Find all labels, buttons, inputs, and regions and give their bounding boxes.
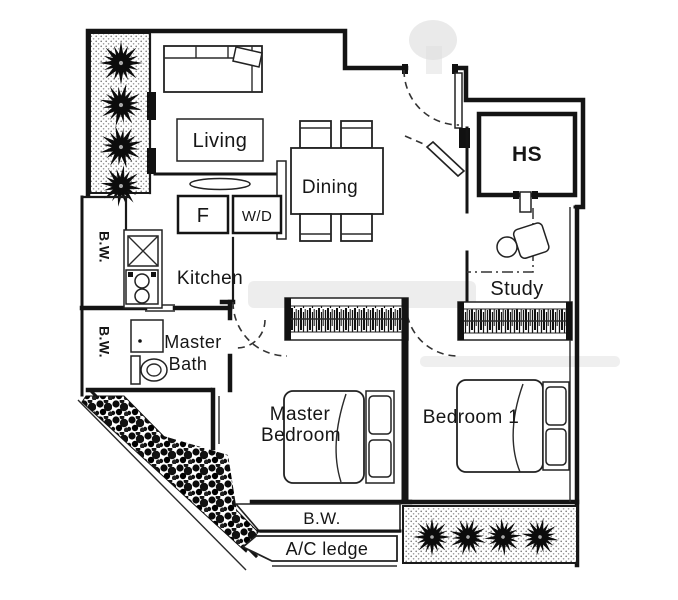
entry-door-swing-dash bbox=[405, 136, 426, 145]
dining-chair-icon bbox=[341, 121, 372, 148]
sink-drain bbox=[138, 339, 142, 343]
planter-top-left bbox=[88, 33, 156, 212]
wall-post bbox=[147, 92, 156, 120]
dining-area: Dining bbox=[277, 121, 383, 241]
wardrobe-cap bbox=[285, 298, 291, 340]
bath-sink-icon bbox=[131, 320, 163, 352]
label-bay-window-lower: B.W. bbox=[96, 326, 112, 358]
door-jamb bbox=[402, 64, 408, 74]
label-ac-ledge: A/C ledge bbox=[286, 539, 369, 559]
bottom-bands: B.W. A/C ledge bbox=[236, 504, 400, 566]
pillow-icon bbox=[546, 387, 566, 425]
watermark-band-bedroom bbox=[420, 356, 620, 367]
toilet-icon bbox=[141, 359, 167, 381]
entry-door-leaf-open bbox=[427, 142, 464, 176]
burner-icon bbox=[135, 289, 149, 303]
stove-knob bbox=[128, 272, 133, 277]
bedroom1-door-arc bbox=[406, 304, 458, 356]
label-living: Living bbox=[193, 130, 248, 152]
bath-door-swing-arc bbox=[237, 320, 265, 348]
wardrobe-cap bbox=[458, 302, 464, 340]
wardrobe-cap bbox=[566, 302, 572, 340]
toilet-tank bbox=[131, 356, 140, 384]
entry-door bbox=[404, 70, 470, 176]
label-master-bath-1: Master bbox=[164, 332, 221, 352]
master-bedroom: Master Bedroom bbox=[213, 390, 410, 502]
door-jamb bbox=[532, 191, 538, 199]
dining-chair-icon bbox=[300, 121, 331, 148]
door-jamb bbox=[513, 191, 519, 199]
dining-chair-icon bbox=[341, 214, 372, 241]
pillow-icon bbox=[369, 396, 391, 434]
household-shelter: HS bbox=[479, 114, 583, 212]
pillow-icon bbox=[369, 440, 391, 477]
study-desk-icon bbox=[512, 222, 550, 260]
pillow-icon bbox=[546, 429, 566, 465]
label-shelter: HS bbox=[512, 143, 542, 166]
label-dining: Dining bbox=[302, 177, 358, 198]
burner-icon bbox=[135, 274, 149, 288]
study-chair-icon bbox=[497, 237, 517, 257]
floor-plan-drawing: Living Dining F W/D Kitchen B.W. bbox=[0, 0, 678, 600]
shelter-door-leaf bbox=[520, 192, 531, 212]
label-bay-window-bottom: B.W. bbox=[303, 509, 341, 528]
foliage-band bbox=[82, 396, 258, 552]
label-kitchen: Kitchen bbox=[177, 268, 243, 289]
watermark-stem bbox=[426, 46, 442, 74]
master-bath: Master Bath B.W. bbox=[88, 302, 265, 390]
label-bedroom1: Bedroom 1 bbox=[423, 407, 520, 428]
label-bay-window-upper: B.W. bbox=[96, 231, 112, 263]
label-study: Study bbox=[490, 278, 543, 300]
tv-console-icon bbox=[190, 179, 250, 190]
stove-knob bbox=[151, 272, 156, 277]
wall-post bbox=[147, 148, 156, 174]
entry-door-leaf bbox=[455, 73, 462, 128]
planter-bottom-left bbox=[82, 396, 258, 552]
label-washer-dryer: W/D bbox=[242, 208, 272, 225]
living-room: Living bbox=[155, 46, 285, 190]
label-fridge: F bbox=[197, 205, 210, 227]
planter-bottom-right bbox=[403, 506, 577, 567]
label-master-bedroom-2: Bedroom bbox=[261, 425, 341, 446]
label-master-bedroom-1: Master bbox=[270, 404, 331, 425]
label-master-bath-2: Bath bbox=[169, 354, 208, 374]
entry-door-swing-arc bbox=[404, 70, 459, 125]
floor-plan: Living Dining F W/D Kitchen B.W. bbox=[0, 0, 678, 600]
dining-chair-icon bbox=[300, 214, 331, 241]
